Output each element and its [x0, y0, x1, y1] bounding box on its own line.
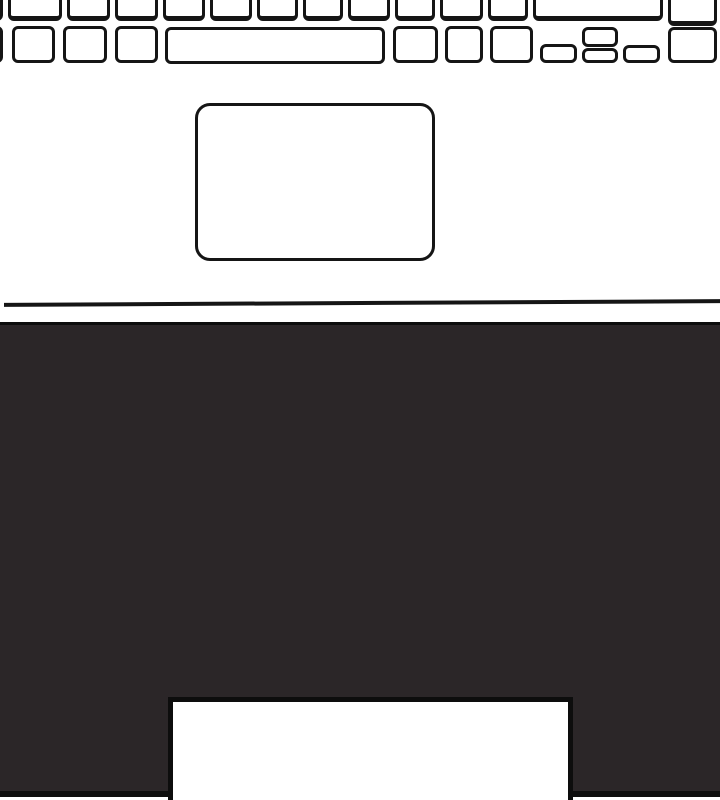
key [163, 0, 205, 21]
key [67, 0, 110, 21]
touchpad [195, 103, 435, 261]
key [668, 27, 717, 63]
key [348, 0, 390, 21]
arrow-right-key [623, 45, 660, 63]
palmrest-front-edge-line [4, 299, 720, 307]
key [12, 26, 55, 63]
keyboard [0, 0, 720, 70]
key [393, 26, 438, 63]
key [395, 0, 435, 21]
key [63, 26, 107, 63]
key [115, 26, 158, 63]
spacebar-key [165, 27, 385, 64]
key [490, 26, 533, 63]
key [488, 0, 528, 21]
wide-key [533, 0, 663, 21]
key [0, 26, 3, 63]
key [668, 0, 717, 26]
arrow-up-key [582, 27, 618, 47]
key [303, 0, 343, 21]
base-cutout [168, 697, 573, 800]
key [0, 0, 3, 21]
key [445, 26, 483, 63]
laptop-palmrest-illustration [0, 0, 720, 800]
arrow-left-key [540, 44, 577, 63]
key [210, 0, 252, 21]
key [257, 0, 298, 21]
arrow-down-key [582, 48, 618, 63]
key [115, 0, 158, 21]
key [440, 0, 483, 21]
key [8, 0, 62, 21]
